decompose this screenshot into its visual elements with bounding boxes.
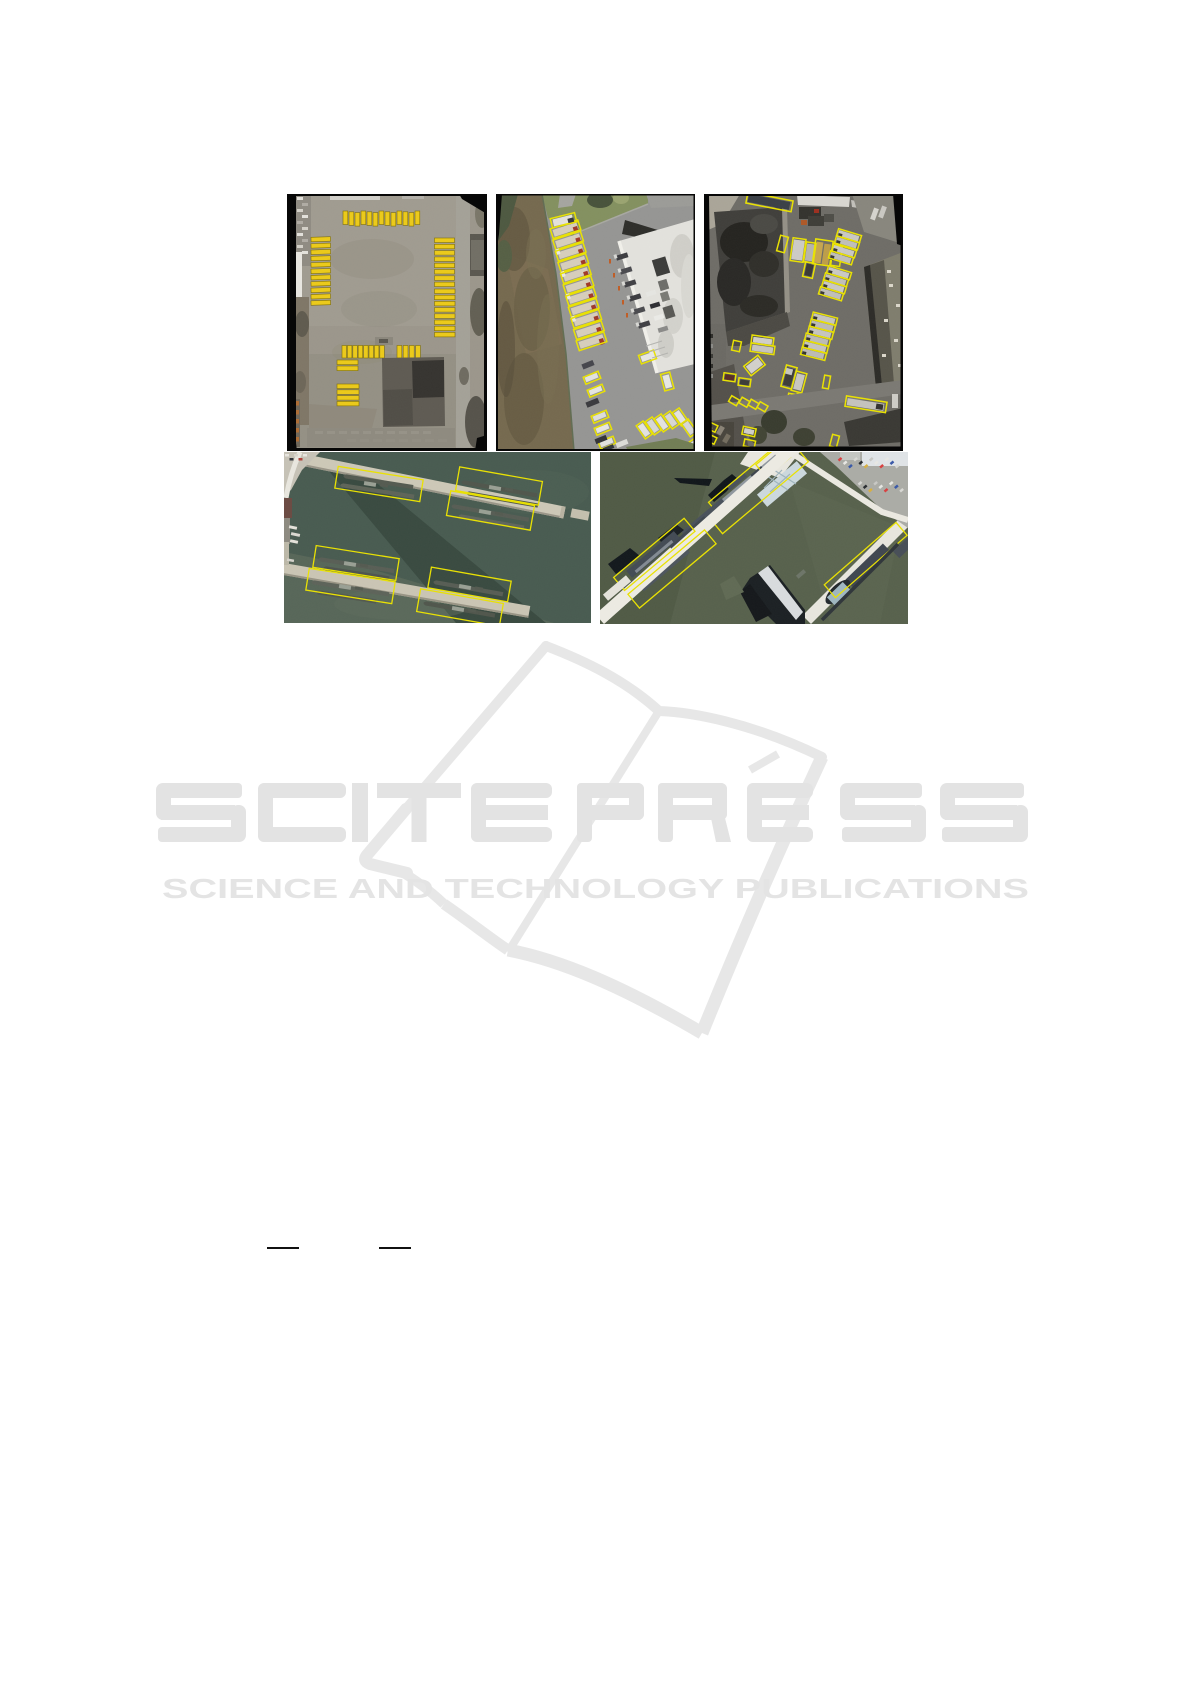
- svg-text:SCIENCE AND TECHNOLOGY PUBLICA: SCIENCE AND TECHNOLOGY PUBLICATIONS: [162, 873, 1029, 904]
